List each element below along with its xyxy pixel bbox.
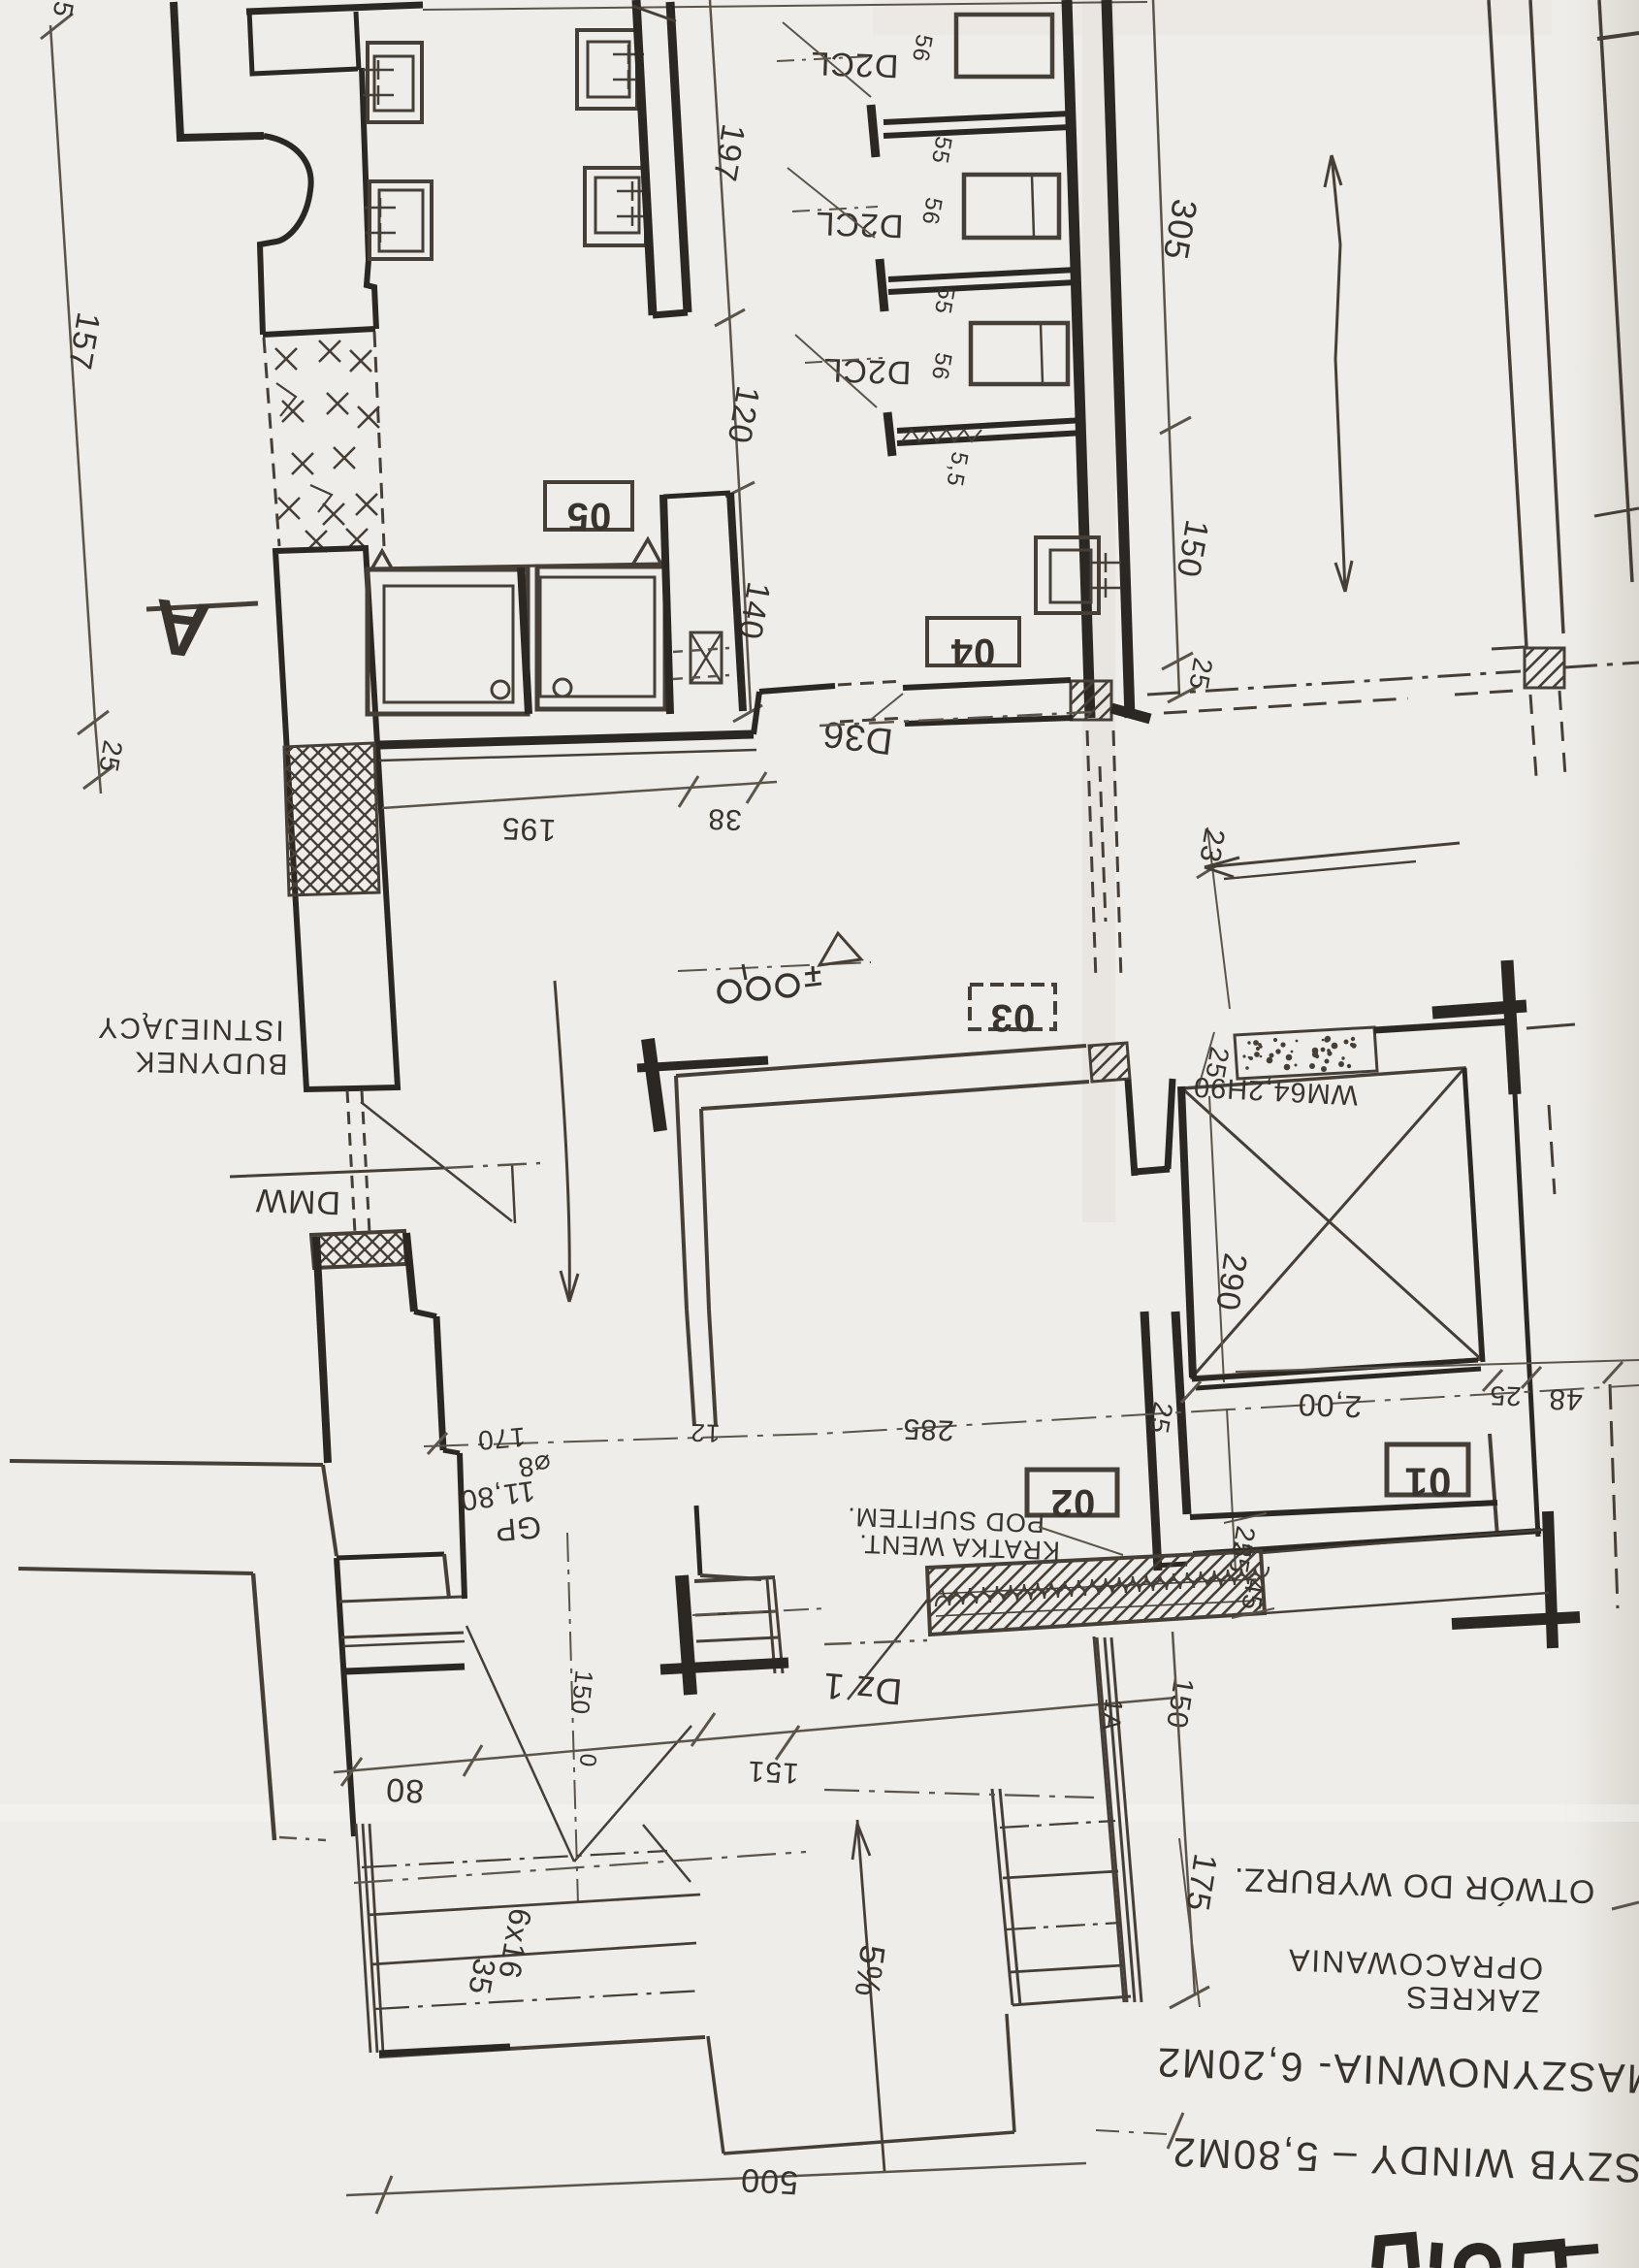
svg-text:45: 45 <box>1236 1576 1270 1613</box>
svg-text:Dz 1: Dz 1 <box>820 1664 903 1711</box>
svg-text:04: 04 <box>950 631 996 673</box>
svg-text:03: 03 <box>990 996 1036 1039</box>
svg-text:150: 150 <box>565 1669 599 1716</box>
svg-text:25: 25 <box>93 738 128 775</box>
svg-text:05: 05 <box>566 495 612 537</box>
svg-text:48: 48 <box>1548 1382 1584 1415</box>
svg-text:1A: 1A <box>1097 1698 1129 1733</box>
svg-text:25: 25 <box>1183 656 1218 693</box>
svg-text:25: 25 <box>1226 1524 1261 1561</box>
svg-text:D36: D36 <box>820 713 895 762</box>
svg-text:23: 23 <box>1193 826 1231 865</box>
svg-text:2,00: 2,00 <box>1297 1387 1362 1424</box>
svg-text:25: 25 <box>1489 1380 1522 1411</box>
svg-text:80: 80 <box>384 1770 425 1809</box>
svg-text:285: 285 <box>902 1412 954 1446</box>
svg-text:35: 35 <box>462 1956 502 1997</box>
svg-text:D2CL: D2CL <box>810 45 899 84</box>
svg-text:GP: GP <box>493 1509 542 1548</box>
svg-text:02: 02 <box>1050 1481 1096 1524</box>
svg-text:170: 170 <box>476 1422 527 1456</box>
svg-text:⌀8: ⌀8 <box>516 1448 553 1482</box>
svg-text:DMW: DMW <box>254 1182 340 1221</box>
svg-text:0: 0 <box>573 1752 600 1768</box>
svg-text:55: 55 <box>929 284 960 316</box>
svg-text:56: 56 <box>907 32 938 64</box>
svg-text:500: 500 <box>739 2161 799 2201</box>
svg-text:5%: 5% <box>848 1943 893 2000</box>
svg-text:ISTNIEJĄCY: ISTNIEJĄCY <box>96 1011 284 1046</box>
svg-text:01: 01 <box>1404 1460 1452 1506</box>
svg-text:A: A <box>147 582 214 675</box>
svg-text:195: 195 <box>500 811 557 848</box>
svg-text:55: 55 <box>926 134 957 166</box>
svg-text:38: 38 <box>707 802 743 835</box>
svg-text:BUDYNEK: BUDYNEK <box>133 1046 288 1081</box>
svg-text:25: 25 <box>1143 1400 1178 1437</box>
svg-text:12: 12 <box>690 1418 721 1448</box>
svg-text:56: 56 <box>926 350 957 382</box>
svg-text:151: 151 <box>747 1755 800 1790</box>
svg-text:56: 56 <box>916 195 948 227</box>
